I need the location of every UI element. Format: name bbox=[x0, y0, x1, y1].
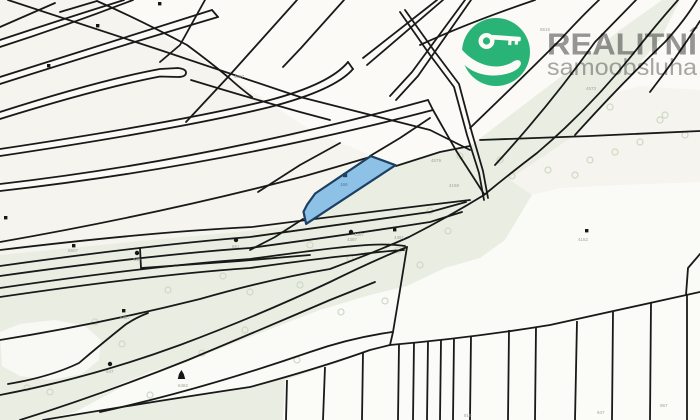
svg-text:4391: 4391 bbox=[394, 235, 405, 240]
svg-text:6487: 6487 bbox=[120, 315, 131, 320]
svg-text:651: 651 bbox=[232, 244, 240, 249]
svg-text:919: 919 bbox=[464, 413, 472, 418]
svg-text:169: 169 bbox=[340, 182, 348, 187]
svg-text:4579: 4579 bbox=[431, 158, 442, 163]
svg-text:6507: 6507 bbox=[68, 248, 79, 253]
svg-text:4162: 4162 bbox=[578, 237, 589, 242]
svg-text:649: 649 bbox=[133, 257, 141, 262]
svg-text:947: 947 bbox=[597, 410, 605, 415]
svg-text:967: 967 bbox=[660, 403, 668, 408]
svg-text:647: 647 bbox=[106, 369, 114, 374]
svg-text:samoobsluha: samoobsluha bbox=[547, 54, 698, 80]
svg-text:4168: 4168 bbox=[449, 183, 460, 188]
svg-text:4397: 4397 bbox=[347, 237, 358, 242]
svg-text:6482: 6482 bbox=[178, 383, 189, 388]
